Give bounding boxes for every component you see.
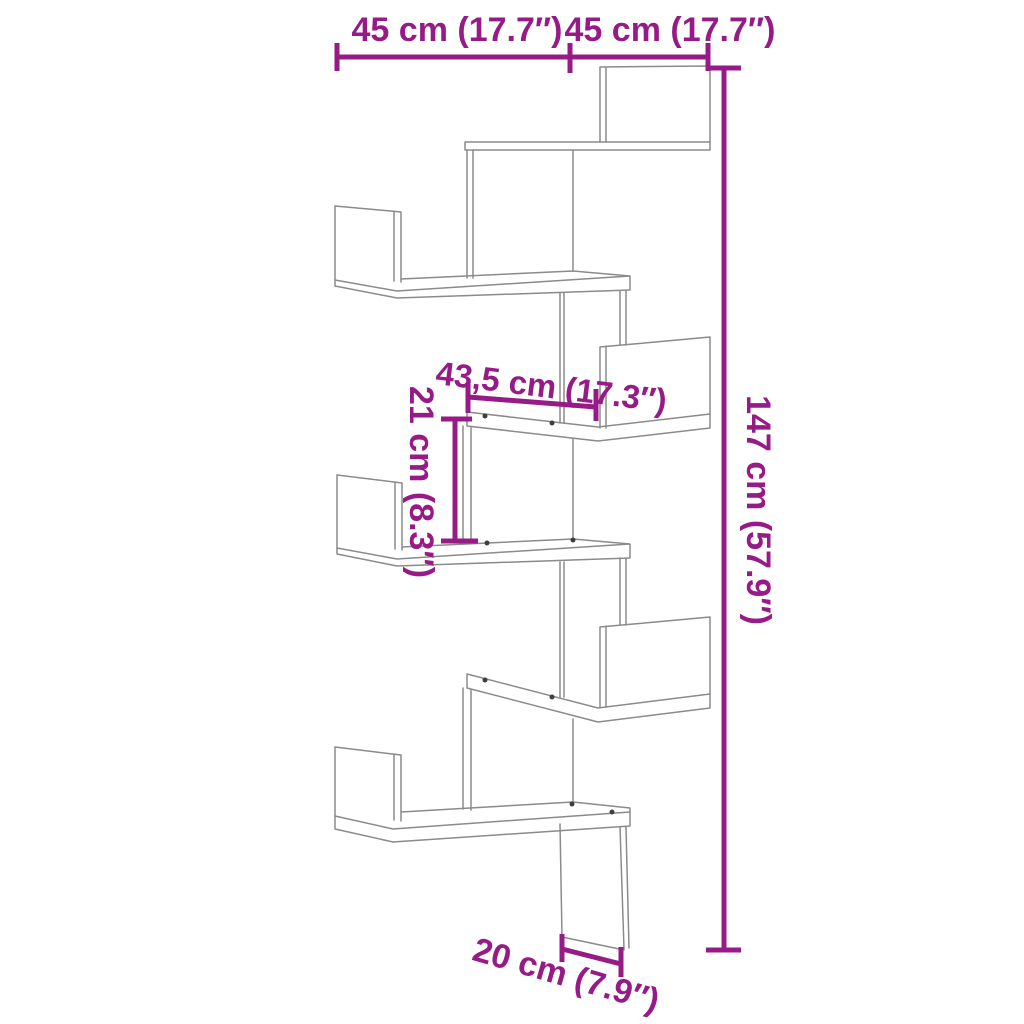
panel-left-middle (337, 475, 402, 550)
panel-top-right (600, 66, 710, 142)
dimension-lines (337, 43, 741, 977)
divider-3 (463, 426, 573, 542)
panel-left-bottom (335, 747, 401, 821)
screw-hole-marks (483, 414, 615, 815)
shelf-line-drawing (335, 66, 710, 950)
divider-5 (463, 688, 573, 810)
product-dimension-diagram: 45 cm (17.7″) 45 cm (17.7″) 147 cm (57.9… (0, 0, 1024, 1024)
divider-4 (560, 558, 626, 697)
shelf-3 (467, 412, 710, 441)
dim-label-bottom-depth: 20 cm (7.9″) (468, 931, 663, 1020)
shelf-6 (335, 802, 630, 842)
dim-line-gap-height (441, 419, 478, 541)
shelf-diagram-canvas: 45 cm (17.7″) 45 cm (17.7″) 147 cm (57.9… (0, 0, 1024, 1024)
shelf-2 (335, 271, 630, 298)
dim-label-height-total: 147 cm (57.9″) (739, 395, 777, 625)
panel-left-upper (335, 206, 401, 282)
shelf-1 (465, 142, 710, 150)
dim-label-width-right: 45 cm (17.7″) (565, 11, 776, 49)
dimension-labels: 45 cm (17.7″) 45 cm (17.7″) 147 cm (57.9… (352, 11, 777, 1020)
dim-label-width-left: 45 cm (17.7″) (352, 11, 563, 49)
divider-1 (467, 150, 573, 278)
shelf-5 (467, 674, 710, 722)
bottom-corner-board (560, 824, 629, 950)
shelf-4 (337, 539, 630, 566)
dim-line-height-total (706, 68, 741, 950)
dim-label-gap-height: 21 cm (8.3″) (402, 386, 440, 578)
panel-right-lower (600, 617, 710, 707)
